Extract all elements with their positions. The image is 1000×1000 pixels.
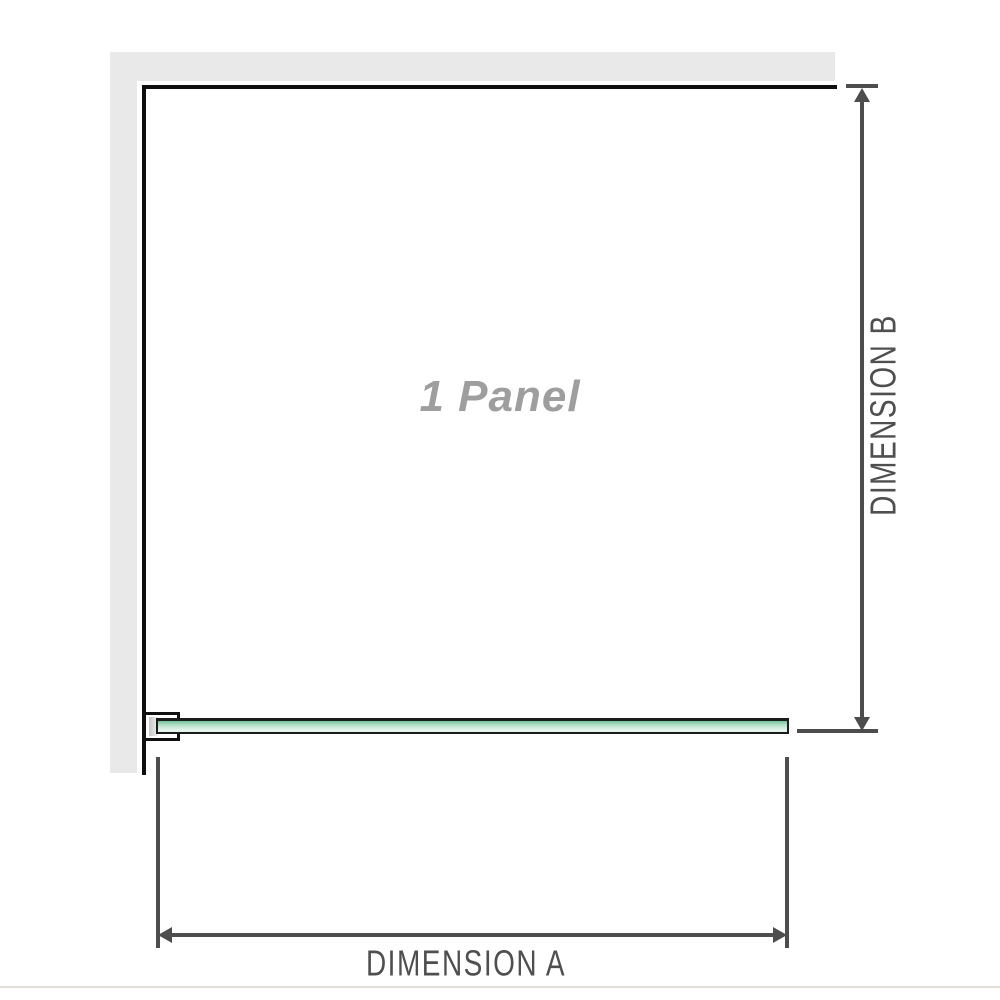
dimension-a-line <box>170 933 775 937</box>
arrow-left-icon <box>158 927 172 943</box>
wall-edge-left-line <box>142 85 146 775</box>
dimension-a-extension-right <box>785 757 789 948</box>
page-bottom-border <box>0 986 1000 988</box>
wall-strip-top <box>110 52 835 81</box>
dimension-a-label: DIMENSION A <box>366 943 566 985</box>
panel-dimension-diagram: 1 Panel DIMENSION B DIMENSION A <box>0 0 1000 1000</box>
arrow-down-icon <box>854 717 870 731</box>
dimension-a-extension-left <box>156 757 160 948</box>
arrow-right-icon <box>773 927 787 943</box>
wall-edge-top-line <box>142 85 837 89</box>
panel-count-label: 1 Panel <box>419 372 580 422</box>
glass-panel <box>156 718 789 734</box>
wall-strip-left <box>110 52 137 773</box>
arrow-up-icon <box>854 88 870 102</box>
dimension-b-label: DIMENSION B <box>863 314 905 516</box>
